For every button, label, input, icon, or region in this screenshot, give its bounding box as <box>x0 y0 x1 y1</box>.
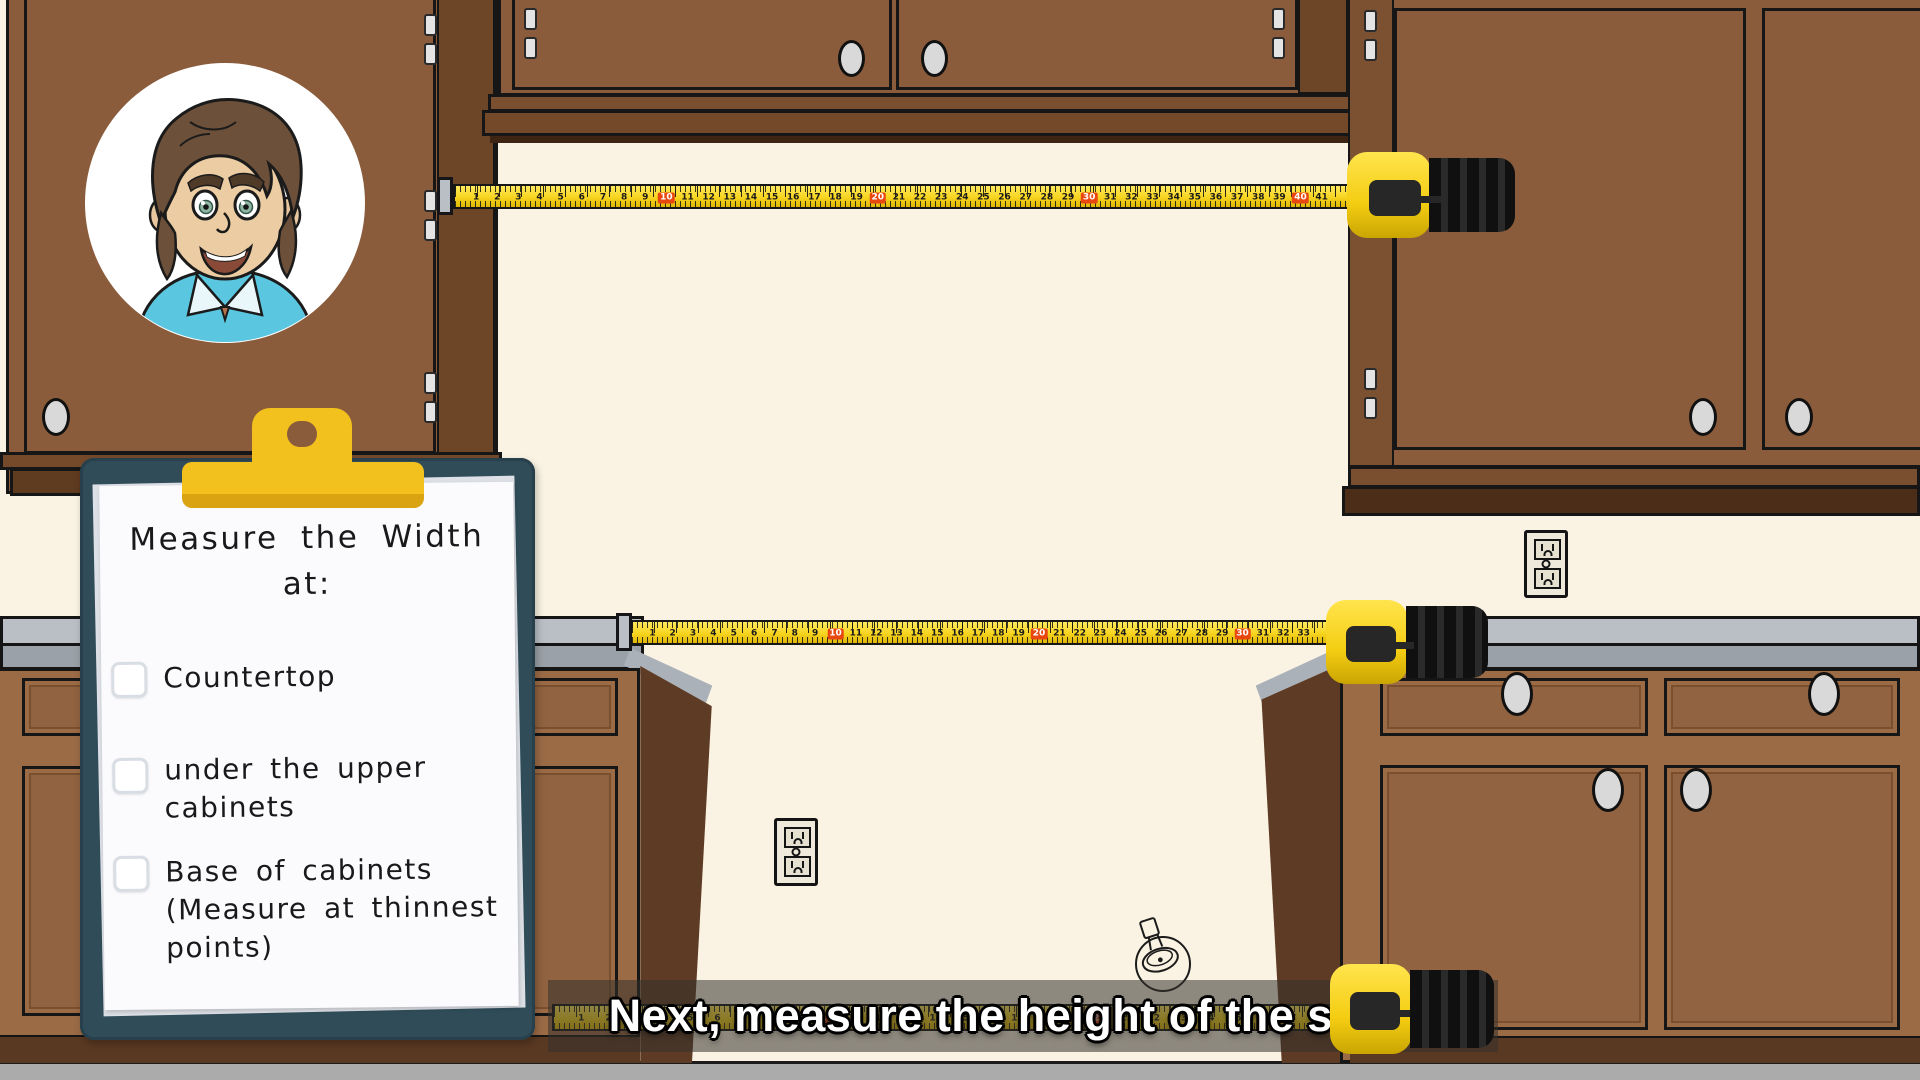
tape-number: 19 <box>1012 629 1025 638</box>
cabinet-knob <box>42 398 70 436</box>
tape-hook <box>437 177 453 215</box>
drawer-knob <box>1808 672 1840 716</box>
tape-measure-grip <box>1346 626 1396 662</box>
hinge-icon <box>1364 368 1377 419</box>
cabinet-knob <box>1785 398 1813 436</box>
tape-number: 3 <box>515 193 521 202</box>
tape-number: 22 <box>1073 629 1086 638</box>
tape-number: 7 <box>771 629 777 638</box>
tape-number: 35 <box>1189 193 1202 202</box>
tape-number: 8 <box>621 193 627 202</box>
tape-number: 18 <box>992 629 1005 638</box>
tape-number: 12 <box>702 193 715 202</box>
tape-number: 11 <box>850 629 863 638</box>
tape-number: 23 <box>935 193 948 202</box>
checklist-item-label: under the upper cabinets <box>164 748 501 828</box>
tape-number: 8 <box>792 629 798 638</box>
tape-number: 10 <box>827 628 844 639</box>
tape-number: 31 <box>1257 629 1270 638</box>
upper-cabinet-center-trim-board <box>482 110 1368 136</box>
tape-hook <box>616 613 632 651</box>
kitchen-illustration: 1234567891011121314151617181920212223242… <box>0 0 1920 1080</box>
floor <box>0 1061 1920 1080</box>
tape-number: 26 <box>998 193 1011 202</box>
tape-number: 23 <box>1094 629 1107 638</box>
tape-number: 4 <box>710 629 716 638</box>
tape-number: 32 <box>1125 193 1138 202</box>
tape-number: 10 <box>658 192 675 203</box>
base-cabinet-right-drawer <box>1664 678 1900 736</box>
tape-number: 6 <box>751 629 757 638</box>
tall-cabinet-left-side <box>437 0 495 491</box>
tape-number: 2 <box>670 629 676 638</box>
tape-measure-back <box>1406 606 1488 678</box>
tape-measure-back <box>1429 158 1515 232</box>
tape-number: 33 <box>1146 193 1159 202</box>
tape-number: 25 <box>977 193 990 202</box>
tape-number: 41 <box>1315 193 1328 202</box>
tape-number: 32 <box>1277 629 1290 638</box>
tape-number: 1 <box>473 193 479 202</box>
checklist-title-line2: at: <box>100 564 514 604</box>
tape-number: 30 <box>1081 192 1098 203</box>
tape-number: 27 <box>1019 193 1032 202</box>
tape-number: 17 <box>972 629 985 638</box>
caption-text: Next, measure the height of the space <box>609 990 1438 1042</box>
tape-number: 37 <box>1231 193 1244 202</box>
tape-number: 7 <box>600 193 606 202</box>
cabinet-knob <box>921 40 948 77</box>
tape-measure-back <box>1410 970 1494 1048</box>
tape-number: 31 <box>1104 193 1117 202</box>
hinge-icon <box>524 8 537 59</box>
tape-number: 33 <box>1297 629 1310 638</box>
tape-number: 5 <box>558 193 564 202</box>
tape-number: 21 <box>1053 629 1066 638</box>
tape-number: 13 <box>890 629 903 638</box>
power-outlet-icon <box>774 818 818 886</box>
cabinet-knob <box>838 40 865 77</box>
under-cabinet-shadow <box>490 136 1360 143</box>
tape-number: 28 <box>1041 193 1054 202</box>
tape-number: 26 <box>1155 629 1168 638</box>
tape-number: 34 <box>1167 193 1180 202</box>
tape-number: 28 <box>1196 629 1209 638</box>
hinge-icon <box>1272 8 1285 59</box>
tape-number: 18 <box>829 193 842 202</box>
door-knob <box>1680 768 1712 812</box>
tape-number: 25 <box>1135 629 1148 638</box>
clipboard-clip-lip <box>182 494 424 508</box>
checkbox-base-of-cabinets <box>113 856 149 892</box>
upper-cabinet-right-trim <box>1348 466 1920 488</box>
tape-number: 30 <box>1234 628 1251 639</box>
tape-number: 2 <box>494 193 500 202</box>
tape-number: 17 <box>808 193 821 202</box>
clipboard-paper: Measure the Width at: Countertop under t… <box>99 482 518 1010</box>
tape-number: 16 <box>787 193 800 202</box>
door-knob <box>1592 768 1624 812</box>
narrator-avatar <box>84 62 366 344</box>
tape-number: 20 <box>1031 628 1048 639</box>
tape-measure-grip <box>1350 992 1400 1030</box>
tape-number: 15 <box>766 193 779 202</box>
checklist-item-label: Countertop <box>163 656 499 698</box>
tape-number: 16 <box>951 629 964 638</box>
tape-number: 1 <box>649 629 655 638</box>
tape-number: 3 <box>690 629 696 638</box>
checkbox-countertop <box>111 662 147 698</box>
tape-number: 29 <box>1216 629 1229 638</box>
tape-number: 9 <box>812 629 818 638</box>
clipboard-clip-bar <box>182 462 424 496</box>
hinge-icon <box>424 372 437 423</box>
tape-number: 5 <box>731 629 737 638</box>
tape-number: 24 <box>956 193 969 202</box>
tape-number: 40 <box>1292 192 1309 203</box>
tape-number: 11 <box>681 193 694 202</box>
checkbox-under-upper-cabinets <box>112 758 148 794</box>
tape-number: 15 <box>931 629 944 638</box>
upper-cabinet-right-door-right <box>1762 8 1920 450</box>
tape-number: 14 <box>745 193 758 202</box>
upper-cabinet-right-trim-dark <box>1342 486 1920 516</box>
tape-number: 19 <box>850 193 863 202</box>
tape-number: 22 <box>914 193 927 202</box>
tape-number: 9 <box>642 193 648 202</box>
tape-number: 27 <box>1175 629 1188 638</box>
tape-number: 13 <box>724 193 737 202</box>
hinge-icon <box>424 190 437 241</box>
power-outlet-icon <box>1524 530 1568 598</box>
tape-ruler-top: 1234567891011121314151617181920212223242… <box>453 184 1349 209</box>
tape-number: 4 <box>536 193 542 202</box>
tape-number: 36 <box>1210 193 1223 202</box>
tape-number: 20 <box>869 192 886 203</box>
tape-number: 14 <box>911 629 924 638</box>
checklist-title-line1: Measure the Width <box>100 518 514 558</box>
drawer-knob <box>1501 672 1533 716</box>
upper-cabinet-center-door-left <box>512 0 892 90</box>
hinge-icon <box>424 14 437 65</box>
hinge-icon <box>1364 10 1377 61</box>
tape-number: 39 <box>1273 193 1286 202</box>
cabinet-knob <box>1689 398 1717 436</box>
tape-number: 6 <box>579 193 585 202</box>
upper-cabinet-center-door-right <box>896 0 1298 90</box>
upper-cabinet-center-side <box>1298 0 1348 94</box>
tape-ruler-middle: 1234567891011121314151617181920212223242… <box>630 620 1330 645</box>
tape-number: 38 <box>1252 193 1265 202</box>
tape-number: 21 <box>893 193 906 202</box>
tape-measure-grip <box>1369 180 1421 216</box>
tape-number: 29 <box>1062 193 1075 202</box>
tape-number: 12 <box>870 629 883 638</box>
checklist-item-label: Base of cabinets (Measure at thinnest po… <box>165 850 502 968</box>
tape-number: 24 <box>1114 629 1127 638</box>
clipboard-clip-hole <box>287 421 317 447</box>
